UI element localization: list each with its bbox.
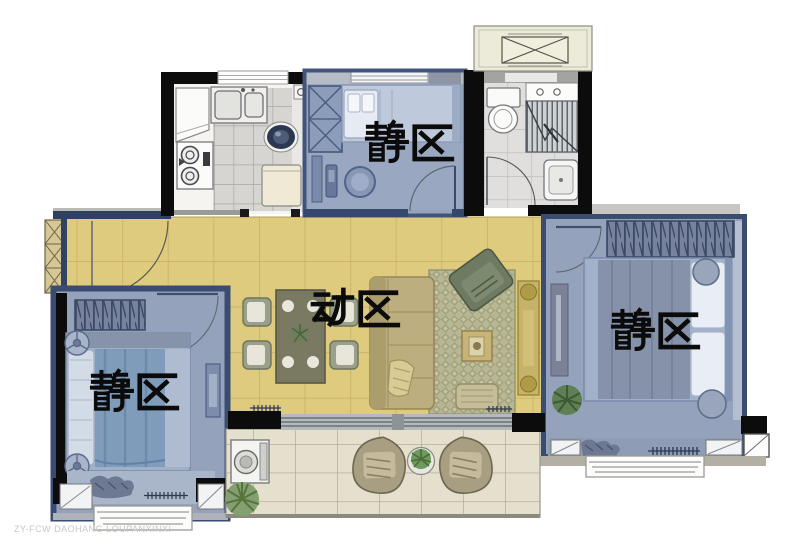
svg-text:ZY-FCW DAOHANG LOUPANXINXI: ZY-FCW DAOHANG LOUPANXINXI (14, 524, 172, 534)
